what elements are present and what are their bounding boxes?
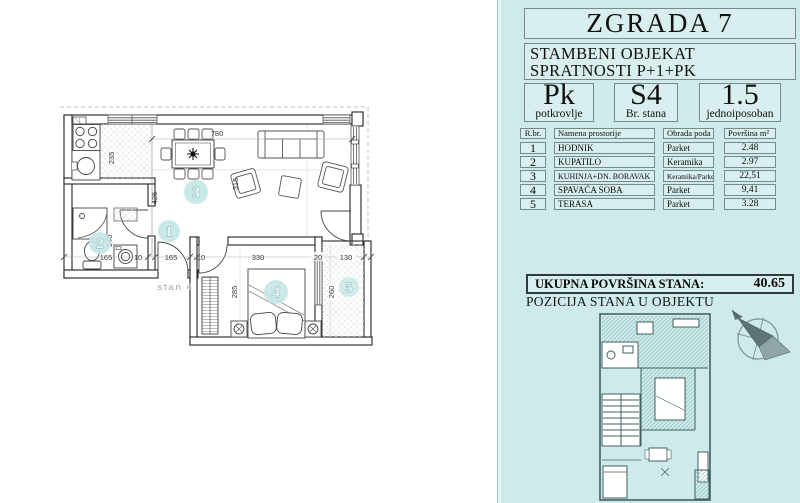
sofa: [258, 131, 324, 158]
row-area: 9,41: [724, 184, 776, 196]
subtitle-line-2: SPRATNOSTI P+1+PK: [530, 62, 795, 79]
svg-text:780: 780: [211, 129, 224, 138]
info-panel: ZGRADA 7 STAMBENI OBJEKAT SPRATNOSTI P+1…: [497, 0, 800, 503]
total-area-box: UKUPNA POVRŠINA STANA: 40.65: [526, 274, 794, 294]
svg-text:315: 315: [231, 178, 240, 191]
table-col-floor: Obrada poda Parket Keramika Keramika/Par…: [663, 128, 714, 212]
row-name: HODNIK: [554, 142, 655, 154]
floor-box: Pk potkrovlje: [524, 83, 594, 122]
row-num: 3: [520, 170, 546, 182]
row-floor: Parket: [663, 198, 714, 210]
row-area: 22,51: [724, 170, 776, 182]
svg-text:5: 5: [346, 281, 353, 296]
row-area: 3.28: [724, 198, 776, 210]
apartment-label: Br. stana: [626, 108, 666, 120]
svg-text:3: 3: [192, 185, 200, 202]
svg-text:260: 260: [327, 286, 336, 299]
header-area: Površina m²: [724, 128, 776, 139]
svg-text:1: 1: [165, 224, 173, 240]
table-col-name: Namena prostorije HODNIK KUPATILO KUHINJ…: [554, 128, 655, 212]
svg-text:235: 235: [107, 152, 116, 165]
svg-text:425: 425: [150, 192, 159, 205]
svg-text:2: 2: [96, 236, 104, 252]
svg-text:330: 330: [252, 253, 265, 262]
table-col-num: R.br. 1 2 3 4 5: [520, 128, 546, 212]
nightstand-left: [231, 321, 247, 337]
row-floor: Parket: [663, 184, 714, 196]
mini-plan: [600, 314, 710, 500]
floor-code: Pk: [543, 82, 575, 108]
subtitle-line-1: STAMBENI OBJEKAT: [530, 45, 795, 62]
svg-text:130: 130: [340, 253, 353, 262]
row-name: KUHINJA+DN. BORAVAK: [554, 170, 655, 182]
apartment-code: S4: [630, 82, 662, 108]
svg-text:165: 165: [100, 253, 113, 262]
kitchen-counter: [72, 117, 100, 180]
header-rbr: R.br.: [520, 128, 546, 139]
row-name: TERASA: [554, 198, 655, 210]
svg-text:10: 10: [134, 253, 142, 262]
building-title: ZGRADA 7: [586, 8, 733, 39]
svg-text:165: 165: [165, 253, 178, 262]
total-area-value: 40.65: [754, 276, 786, 292]
apartment-number-box: S4 Br. stana: [614, 83, 678, 122]
type-label: jednoiposoban: [706, 108, 773, 120]
table-col-area: Površina m² 2.48 2.97 22,51 9,41 3.28: [724, 128, 776, 212]
floor-plan-svg: 235 425 780 315 165 10 165 10 330 20 130…: [0, 0, 497, 503]
row-num: 5: [520, 198, 546, 210]
building-title-box: ZGRADA 7: [524, 8, 796, 39]
row-name: KUPATILO: [554, 156, 655, 168]
header-name: Namena prostorije: [554, 128, 655, 139]
svg-text:10: 10: [197, 253, 205, 262]
side-table: [278, 175, 301, 198]
row-num: 1: [520, 142, 546, 154]
nightstand-right: [305, 321, 321, 337]
row-num: 2: [520, 156, 546, 168]
row-num: 4: [520, 184, 546, 196]
brochure-page: 235 425 780 315 165 10 165 10 330 20 130…: [0, 0, 800, 503]
shaft-hatch: [114, 208, 137, 221]
type-code: 1.5: [721, 82, 759, 108]
svg-text:20: 20: [314, 253, 322, 262]
total-area-label: UKUPNA POVRŠINA STANA:: [535, 277, 704, 292]
row-floor: Keramika: [663, 156, 714, 168]
compass-icon: [731, 310, 790, 366]
armchair-right: [317, 161, 349, 193]
position-title: POZICIJA STANA U OBJEKTU: [526, 294, 714, 310]
row-name: SPAVAĆA SOBA: [554, 184, 655, 196]
row-floor: Keramika/Parket: [663, 170, 714, 182]
row-floor: Parket: [663, 142, 714, 154]
row-area: 2.48: [724, 142, 776, 154]
header-floor: Obrada poda: [663, 128, 714, 139]
floor-label: potkrovlje: [535, 108, 582, 120]
svg-text:285: 285: [230, 286, 239, 299]
svg-text:4: 4: [272, 285, 280, 302]
row-area: 2.97: [724, 156, 776, 168]
building-subtitle-box: STAMBENI OBJEKAT SPRATNOSTI P+1+PK: [524, 43, 796, 80]
apartment-type-box: 1.5 jednoiposoban: [699, 83, 781, 122]
unit-label: stan 4: [157, 282, 193, 293]
